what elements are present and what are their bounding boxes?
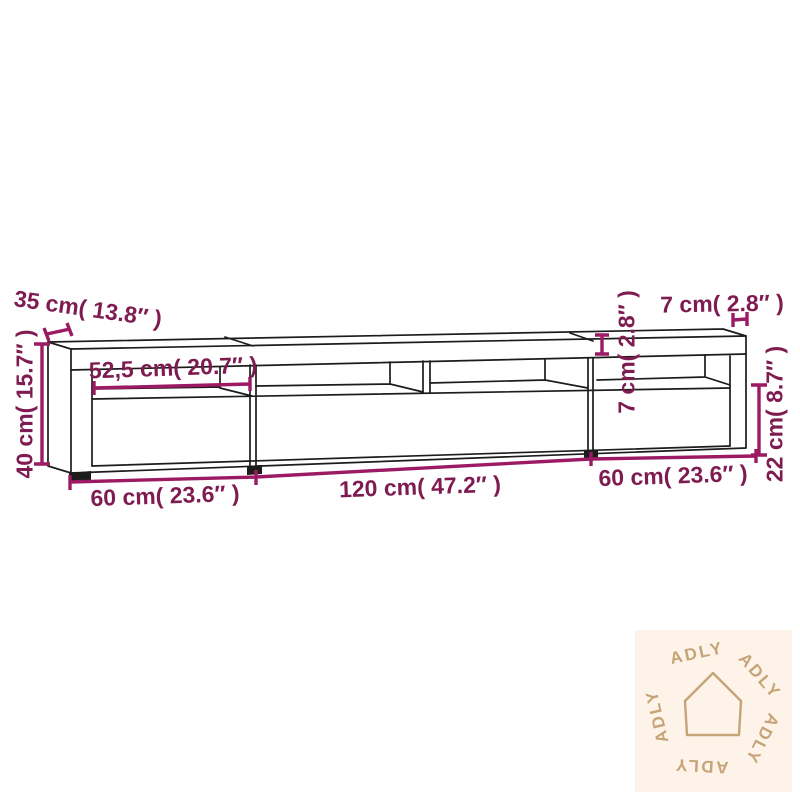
height-dimension-label: 40 cm( 15.7″ ) [14, 329, 37, 478]
product-dimension-diagram: 35 cm( 13.8″ ) 40 cm( 15.7″ ) 52,5 cm( 2… [0, 0, 800, 800]
inner-shelf-width-label: 52,5 cm( 20.7″ ) [89, 354, 258, 383]
right-section-width-label: 60 cm( 23.6″ ) [598, 462, 748, 490]
cabinet-feet [69, 450, 598, 482]
cabinet-outline [48, 329, 746, 473]
middle-section-width-label: 120 cm( 47.2″ ) [339, 473, 502, 502]
lower-section-height-label: 22 cm( 8.7″ ) [764, 346, 787, 482]
shelf-front-height-label: 7 cm( 2.8″ ) [616, 290, 639, 414]
side-panel-width-label: 7 cm( 2.8″ ) [660, 291, 784, 316]
watermark-brand-text: ADLY [673, 756, 729, 776]
left-section-width-label: 60 cm( 23.6″ ) [90, 482, 240, 510]
watermark-badge: ADLY ADLY ADLY ADLY ADLY [635, 630, 792, 792]
